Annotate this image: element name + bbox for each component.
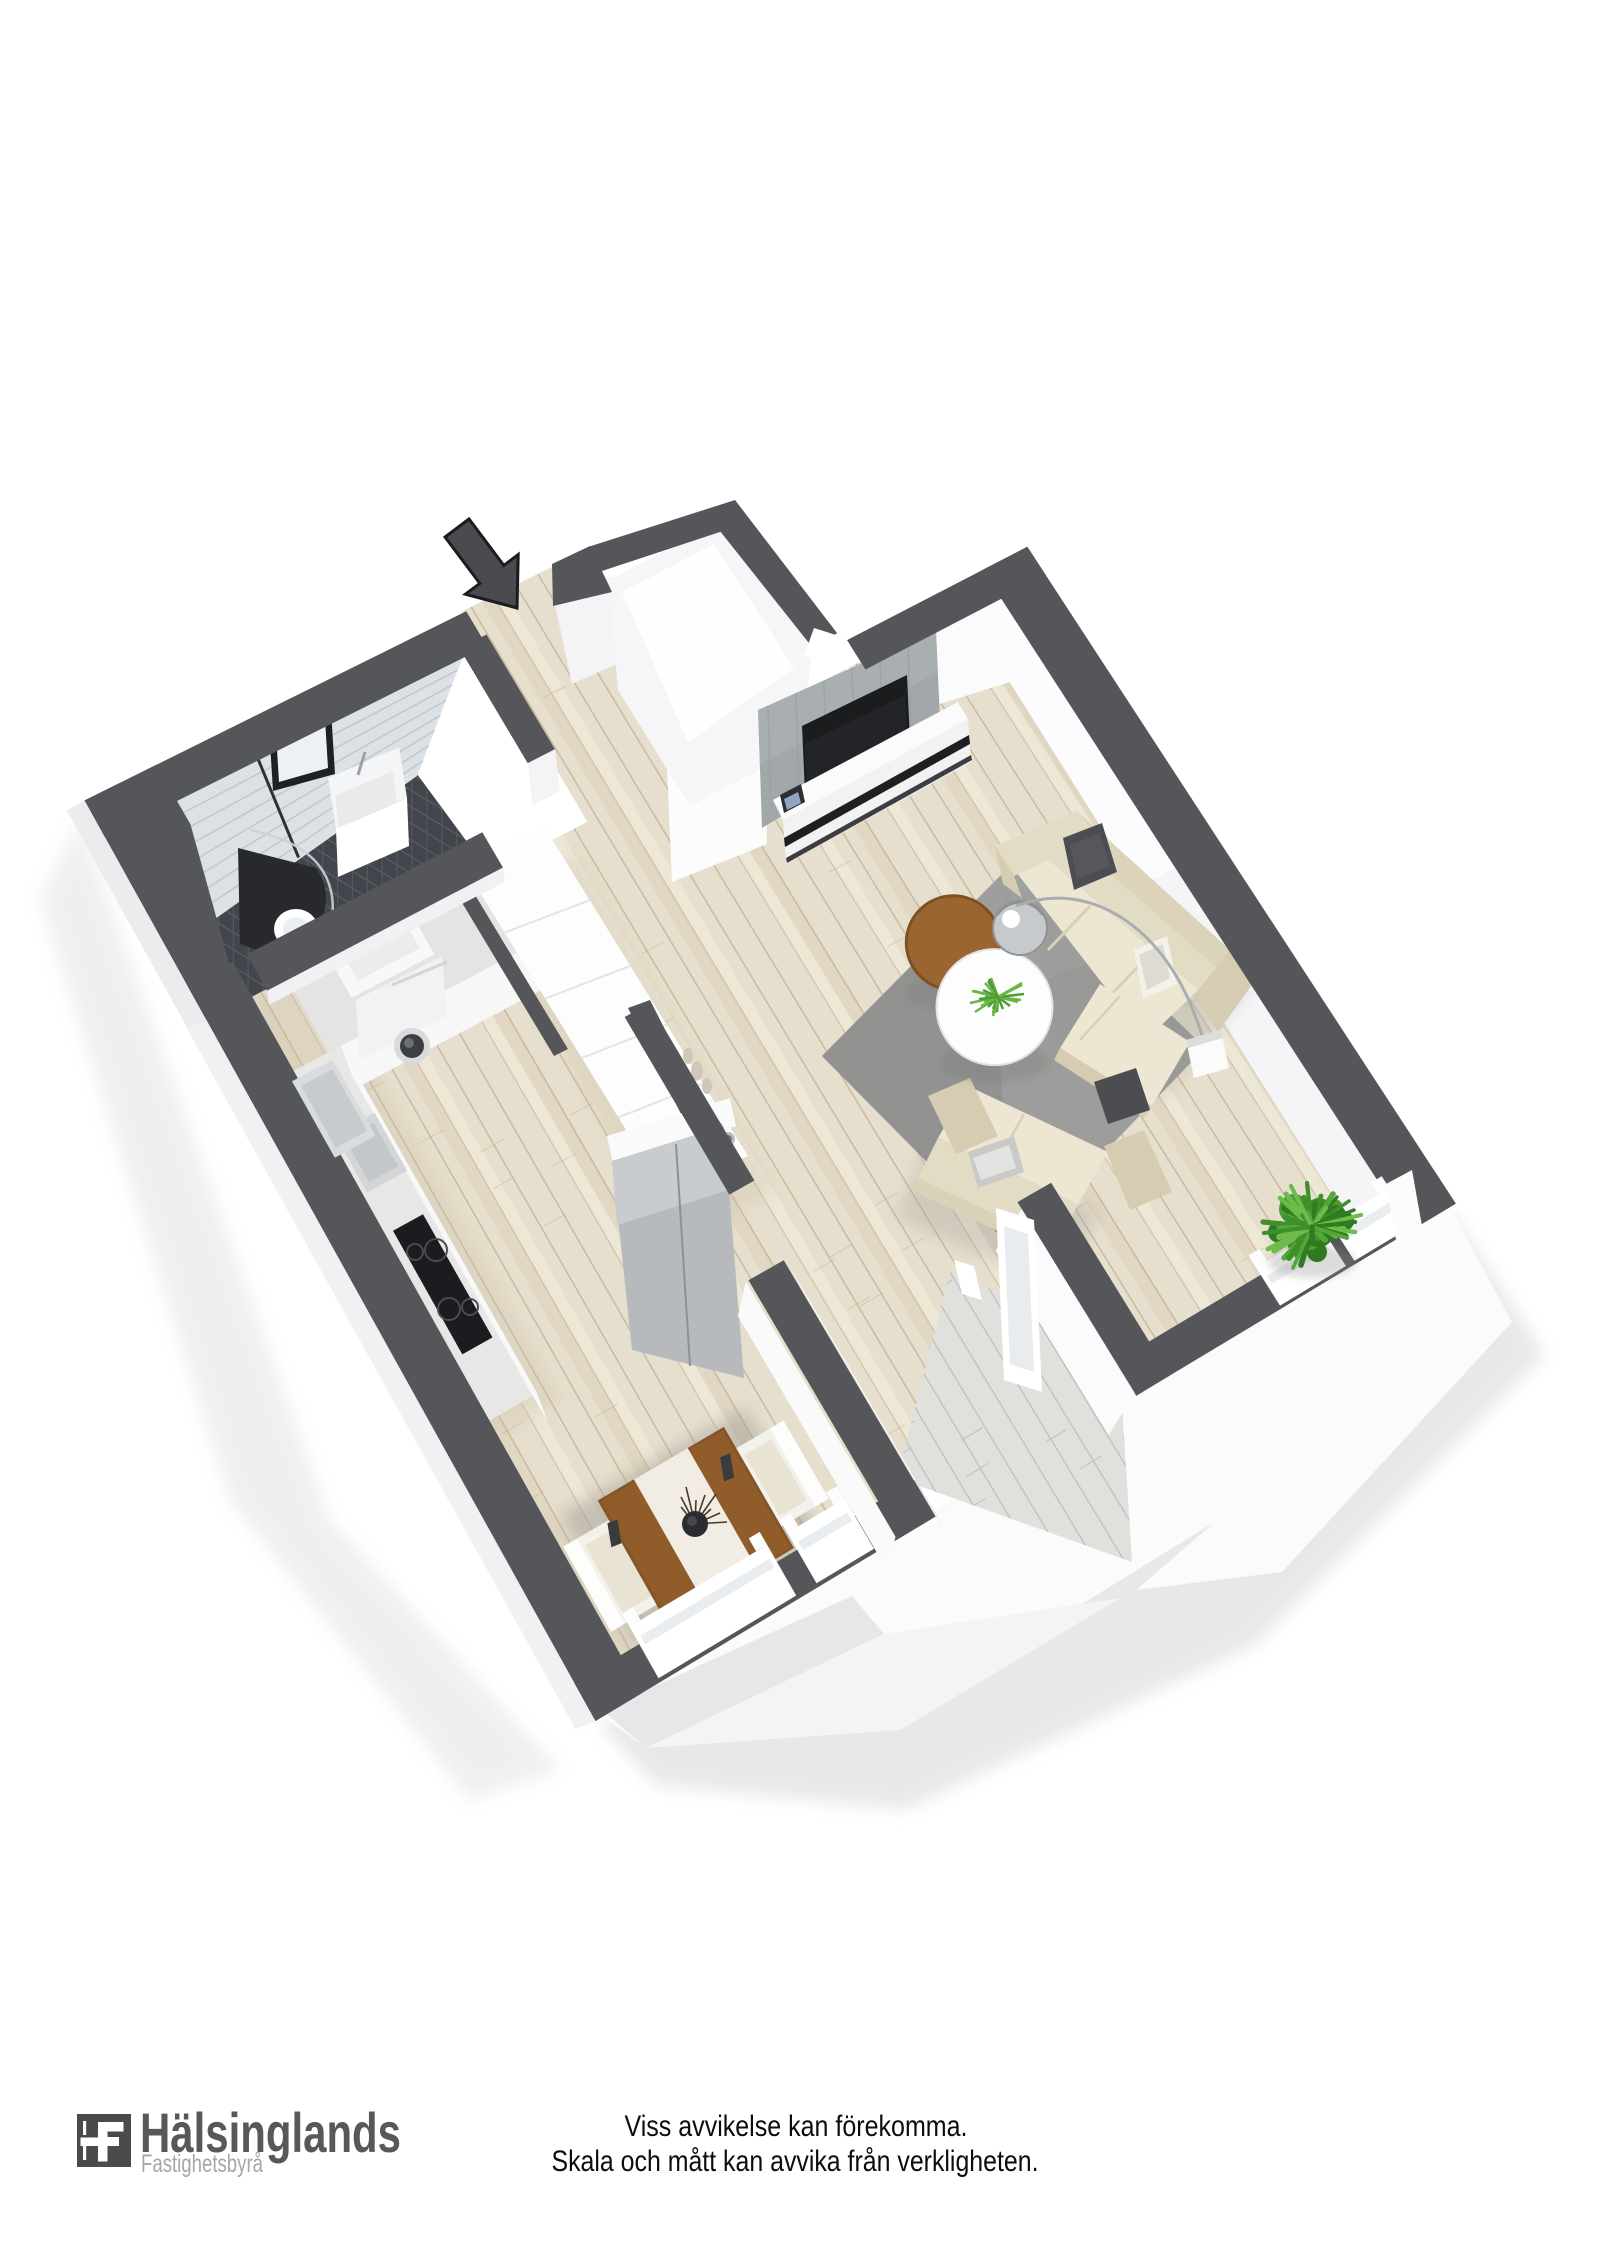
svg-text:Fastighetsbyrå: Fastighetsbyrå [141,2150,263,2178]
svg-text:Skala och mått kan avvika från: Skala och mått kan avvika från verklighe… [552,2145,1039,2178]
svg-text:Viss avvikelse kan förekomma.: Viss avvikelse kan förekomma. [625,2110,968,2143]
